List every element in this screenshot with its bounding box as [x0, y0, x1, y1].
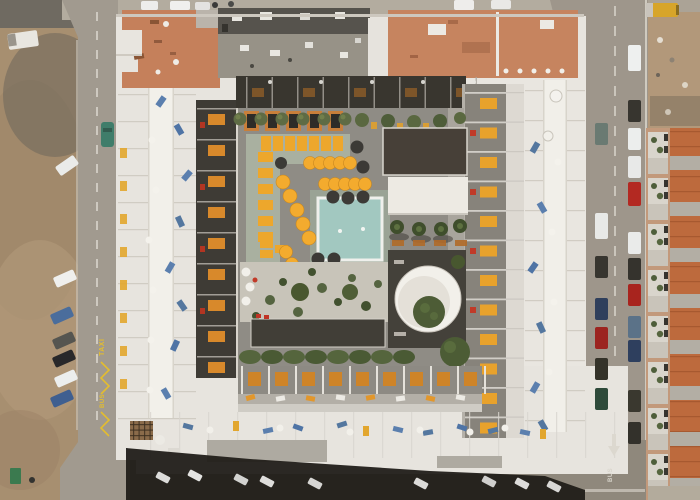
- wall-line: [506, 328, 524, 329]
- terrace-table: [148, 337, 155, 344]
- cabana-divider: [241, 366, 243, 394]
- debris: [682, 82, 688, 88]
- yellow-sunbed: [480, 98, 497, 109]
- red-chair: [200, 246, 205, 252]
- yellow-sunbed: [480, 334, 497, 345]
- balcony-lamp: [472, 80, 476, 84]
- gravel-garden: [240, 262, 392, 322]
- house-window: [664, 238, 668, 245]
- balcony-divider: [348, 77, 350, 110]
- red-chair: [470, 307, 476, 313]
- red-chair: [264, 315, 269, 319]
- aerial-photo: TAXIBUSBUS: [0, 0, 700, 500]
- yellow-door: [233, 421, 239, 431]
- top-sidewalk-line: [116, 14, 584, 17]
- car: [170, 1, 190, 10]
- dark-umbrella: [357, 191, 370, 204]
- ac-unit: [355, 38, 361, 43]
- balcony-divider: [399, 77, 401, 110]
- lane-dash: [614, 126, 616, 136]
- car: [628, 182, 641, 206]
- shrub: [308, 268, 316, 276]
- red-chair: [200, 184, 205, 190]
- cabana-divider: [349, 366, 351, 394]
- dark-umbrella: [357, 161, 370, 174]
- debris: [665, 109, 671, 115]
- roof-ridge-line: [670, 176, 700, 177]
- cabana-divider: [457, 366, 459, 394]
- facade-yellow-accent: [120, 313, 127, 323]
- facade-yellow-accent: [120, 214, 127, 224]
- car: [595, 298, 608, 320]
- yellow-umbrella: [283, 189, 297, 203]
- lane-dash: [96, 88, 98, 97]
- terrace-divider: [585, 412, 586, 458]
- yellow-sunbed: [273, 136, 283, 151]
- lane-dash: [96, 297, 98, 306]
- car: [628, 258, 641, 280]
- lane-dash: [614, 106, 616, 116]
- car: [595, 256, 608, 278]
- roof-ridge-line: [670, 356, 700, 357]
- terrace-table: [153, 187, 160, 194]
- lane-dash: [614, 6, 616, 16]
- yellow-sunbed: [258, 152, 273, 162]
- balcony-plant: [651, 321, 657, 327]
- orange-sunbed: [208, 238, 225, 249]
- hedge: [239, 350, 261, 364]
- sidewalk-corner: [648, 486, 700, 500]
- car: [628, 422, 641, 444]
- terrace-table: [146, 237, 153, 244]
- terrace-divider: [411, 412, 412, 458]
- debris: [29, 477, 35, 483]
- facade-yellow-accent: [120, 280, 127, 290]
- tree: [291, 283, 309, 301]
- lane-dash: [614, 266, 616, 276]
- wall-line: [506, 181, 524, 182]
- car-green: [101, 122, 114, 147]
- big-tree: [440, 337, 470, 367]
- balcony-plant: [657, 423, 663, 429]
- yellow-sunbed: [480, 128, 497, 139]
- car-van: [628, 45, 641, 71]
- tree-highlight: [320, 115, 325, 120]
- bench: [394, 260, 404, 264]
- yellow-sunbed: [261, 136, 271, 151]
- tree: [234, 113, 247, 126]
- orange-sunbed: [383, 372, 396, 386]
- orange-sunbed: [208, 145, 225, 156]
- roof-umbrella-white: [560, 69, 565, 74]
- roof-mark: [448, 20, 458, 24]
- car: [595, 123, 608, 145]
- yellow-sunbed: [297, 136, 307, 151]
- car-van: [595, 213, 608, 239]
- roof-table: [156, 70, 161, 75]
- roof-structure: [428, 24, 446, 35]
- hedge: [371, 350, 393, 364]
- lane-dash: [614, 186, 616, 196]
- tree: [276, 113, 289, 126]
- left-road-curb: [76, 40, 78, 430]
- balcony-plant: [651, 183, 657, 189]
- terrace-table: [417, 427, 424, 434]
- roof-vent: [250, 64, 254, 68]
- lane-dash: [96, 183, 98, 192]
- balcony-edge: [236, 100, 238, 378]
- pergola-inner: [331, 114, 340, 128]
- balcony-plant: [657, 469, 663, 475]
- roof-umbrella-white: [532, 69, 537, 74]
- house-window: [664, 468, 668, 475]
- balcony-bed-dim: [354, 88, 366, 97]
- car: [628, 100, 641, 122]
- yellow-sunbed: [260, 240, 273, 248]
- lane-dash: [96, 373, 98, 382]
- terrace-line: [118, 418, 196, 419]
- shrub: [334, 298, 342, 306]
- tree-highlight: [257, 115, 262, 120]
- balcony-lamp: [370, 80, 374, 84]
- dark-umbrella: [327, 191, 340, 204]
- palm-highlight: [394, 224, 400, 230]
- rowhouse-gable: [670, 202, 700, 216]
- car: [628, 316, 641, 338]
- wall-line: [506, 92, 524, 93]
- lookout-tree-highlight: [420, 303, 430, 313]
- orange-sunbed: [208, 331, 225, 342]
- car: [628, 232, 641, 254]
- terrace-table: [555, 159, 562, 166]
- wall-line: [506, 210, 524, 211]
- car-windshield: [103, 128, 112, 132]
- roof-shade: [462, 42, 490, 53]
- shrub: [293, 307, 303, 317]
- car: [141, 1, 158, 10]
- balcony-wall: [506, 84, 524, 438]
- balcony-divider: [197, 139, 238, 141]
- roof-structure: [540, 20, 554, 29]
- balcony-plant: [657, 193, 663, 199]
- roof-ridge-line: [670, 221, 700, 222]
- wall-line: [506, 299, 524, 300]
- roof-ridge-line: [670, 461, 700, 462]
- roof-ridge-line: [670, 191, 700, 192]
- yellow-pergola-dot: [371, 122, 377, 129]
- yellow-sunbed: [258, 184, 273, 194]
- bench: [394, 332, 406, 336]
- cabana-divider: [322, 366, 324, 394]
- lane-dash: [96, 354, 98, 363]
- lane-dash: [96, 278, 98, 287]
- pergola-grid-line: [130, 424, 153, 425]
- terrace-table: [546, 369, 553, 376]
- yellow-umbrella: [276, 175, 290, 189]
- rowhouse-front: [648, 342, 668, 358]
- lane-dash: [614, 146, 616, 156]
- balcony-divider: [197, 232, 238, 234]
- yellow-umbrella: [280, 246, 293, 259]
- roof-ridge-line: [670, 281, 700, 282]
- balcony-plant: [651, 459, 657, 465]
- tree: [407, 115, 421, 129]
- white-umbrella: [242, 268, 251, 277]
- balcony-bed-dim: [303, 88, 315, 97]
- orange-sunbed: [208, 362, 225, 373]
- rowhouse-gable: [670, 432, 700, 446]
- terrace-table: [502, 425, 509, 432]
- shrub: [348, 274, 356, 282]
- orange-sunbed: [208, 207, 225, 218]
- lane-dash: [96, 259, 98, 268]
- terrace-divider: [440, 412, 441, 458]
- hedge: [349, 350, 371, 364]
- lane-dash: [96, 335, 98, 344]
- lane-dash: [96, 202, 98, 211]
- pergola-grid-line: [130, 430, 153, 431]
- orange-sunbed: [464, 372, 477, 386]
- crosswalk-line: [585, 489, 645, 492]
- terrace-divider: [382, 412, 383, 458]
- terrace-table: [207, 427, 214, 434]
- orange-sunbed: [208, 114, 225, 125]
- balcony-lamp: [421, 80, 425, 84]
- house-window: [664, 318, 668, 325]
- orange-sunbed: [410, 372, 423, 386]
- lane-dash: [614, 226, 616, 236]
- orange-sunbed: [302, 372, 315, 386]
- roof-ridge-line: [670, 146, 700, 147]
- wall-line: [506, 122, 524, 123]
- yellow-umbrella: [290, 203, 304, 217]
- house-window: [664, 134, 668, 141]
- roof-white-edge: [578, 16, 586, 80]
- hedge: [327, 350, 349, 364]
- tree: [433, 114, 447, 128]
- dark-umbrella: [342, 192, 355, 205]
- spine-edge: [173, 88, 175, 418]
- balcony-divider: [197, 201, 238, 203]
- truck-detail: [676, 5, 679, 15]
- pergola-inner: [268, 114, 277, 128]
- yellow-sunbed: [258, 216, 273, 226]
- red-chair: [256, 314, 261, 318]
- house-window: [664, 410, 668, 417]
- shrub: [317, 283, 327, 293]
- yellow-door: [540, 429, 546, 439]
- balcony-divider: [197, 356, 238, 358]
- balcony-plant: [657, 285, 663, 291]
- lane-dash: [96, 221, 98, 230]
- ac-unit: [270, 50, 280, 56]
- facade-yellow-accent: [120, 247, 127, 257]
- car: [628, 340, 641, 362]
- dark-umbrella: [275, 157, 287, 169]
- lane-dash: [614, 246, 616, 256]
- lookout-tree: [413, 296, 445, 328]
- shrub: [279, 278, 287, 286]
- pergola-grid-line: [130, 435, 153, 436]
- spine-edge: [566, 80, 568, 432]
- shrub: [374, 280, 382, 288]
- green-dumpster: [10, 468, 21, 484]
- orange-planter: [413, 240, 425, 246]
- bus-road-marking-left: BUS: [100, 394, 106, 408]
- cabana-divider: [268, 366, 270, 394]
- charcoal-roof: [251, 319, 385, 347]
- pergola-inner: [247, 114, 256, 128]
- cabana-divider: [295, 366, 297, 394]
- facade-yellow-accent: [120, 148, 127, 158]
- hedge: [393, 350, 415, 364]
- lane-dash: [96, 411, 98, 420]
- lane-dash: [614, 46, 616, 56]
- wall-line: [506, 417, 524, 418]
- white-umbrella: [242, 297, 251, 306]
- yellow-sunbed: [333, 136, 343, 151]
- roof-table: [173, 59, 179, 65]
- lane-dash: [96, 69, 98, 78]
- palm-highlight: [457, 223, 463, 229]
- yellow-door: [363, 426, 369, 436]
- rowhouse-front: [648, 158, 668, 174]
- terrace-table: [549, 229, 556, 236]
- lane-dash: [96, 145, 98, 154]
- big-tree-highlight: [444, 341, 456, 353]
- balcony-lamp: [268, 80, 272, 84]
- orange-sunbed: [356, 372, 369, 386]
- balcony-divider: [197, 263, 238, 265]
- house-window: [664, 272, 668, 279]
- terrace-divider: [353, 412, 354, 458]
- wall-line: [506, 269, 524, 270]
- pergola-inner: [289, 114, 298, 128]
- aerial-photo-svg: TAXIBUSBUS: [0, 0, 700, 500]
- ac-unit: [340, 52, 348, 58]
- house-window: [664, 422, 668, 429]
- orange-sunbed: [248, 372, 261, 386]
- balcony-plant: [651, 413, 657, 419]
- house-window: [664, 456, 668, 463]
- rowhouse-gable: [670, 248, 700, 262]
- debris: [656, 73, 660, 77]
- yellow-umbrella: [344, 157, 357, 170]
- roof-vent: [288, 58, 292, 62]
- balcony-divider: [197, 108, 238, 110]
- house-window: [664, 180, 668, 187]
- tree: [297, 113, 310, 126]
- roof-hatch: [222, 24, 228, 32]
- tree-highlight: [299, 115, 304, 120]
- balcony-divider: [197, 294, 238, 296]
- balcony-divider: [450, 77, 452, 110]
- roof-umbrella-white: [546, 69, 551, 74]
- yellow-sunbed: [480, 364, 497, 375]
- roof-mark: [410, 55, 418, 58]
- rowhouse-gable: [670, 156, 700, 170]
- rowhouse-front: [648, 388, 668, 404]
- lane-dash: [96, 316, 98, 325]
- lane-dash: [96, 164, 98, 173]
- terrace-table: [277, 425, 284, 432]
- terrace-table: [347, 429, 354, 436]
- red-chair: [200, 122, 205, 128]
- roof-ridge-line: [670, 326, 700, 327]
- roof-mark: [154, 40, 162, 43]
- balcony-plant: [657, 239, 663, 245]
- facade-yellow-accent: [120, 379, 127, 389]
- balcony-lamp: [319, 80, 323, 84]
- roof-ridge-line: [670, 476, 700, 477]
- house-window: [664, 284, 668, 291]
- balcony-divider: [297, 77, 299, 110]
- yellow-sunbed: [260, 250, 273, 258]
- orange-planter: [455, 240, 467, 246]
- roof-umbrella-white: [518, 69, 523, 74]
- terrace-table: [467, 429, 474, 436]
- orange-sunbed: [208, 300, 225, 311]
- yellow-umbrella: [296, 217, 310, 231]
- terrace-table: [149, 137, 156, 144]
- yellow-sunbed: [480, 216, 497, 227]
- orange-sunbed: [437, 372, 450, 386]
- yellow-sunbed: [480, 187, 497, 198]
- tree-highlight: [341, 115, 346, 120]
- hedge: [305, 350, 327, 364]
- hedge: [261, 350, 283, 364]
- lane-dash: [96, 107, 98, 116]
- gray-roof: [437, 456, 502, 468]
- rowhouse-front: [648, 434, 668, 450]
- lane-dash: [96, 392, 98, 401]
- lane-dash: [614, 286, 616, 296]
- rowhouse-front: [648, 204, 668, 220]
- truck-camper-cab: [7, 34, 17, 47]
- lane-dash: [614, 66, 616, 76]
- lane-dash: [614, 26, 616, 36]
- tree: [381, 114, 395, 128]
- terrace-table: [551, 299, 558, 306]
- car: [628, 128, 641, 150]
- roof-ridge-line: [670, 266, 700, 267]
- yellow-sunbed: [480, 157, 497, 168]
- terrace-table: [147, 387, 154, 394]
- tree: [454, 112, 466, 124]
- balcony-plant: [657, 377, 663, 383]
- pergola-inner: [310, 114, 319, 128]
- debris: [657, 37, 663, 43]
- house-window: [664, 226, 668, 233]
- corner-annex: [116, 30, 142, 56]
- cabana-divider: [376, 366, 378, 394]
- truck-cab: [646, 3, 653, 17]
- lane-dash: [614, 346, 616, 356]
- lane-dash: [614, 166, 616, 176]
- yellow-sunbed: [258, 200, 273, 210]
- rowhouse-front: [648, 296, 668, 312]
- red-chair: [470, 130, 476, 136]
- facade-yellow-accent: [120, 181, 127, 191]
- lane-dash: [614, 86, 616, 96]
- water-tank: [543, 131, 553, 141]
- yellow-umbrella: [302, 231, 316, 245]
- lane-dash: [96, 126, 98, 135]
- red-chair: [253, 278, 258, 283]
- balcony-plant: [651, 229, 657, 235]
- cabana-divider: [403, 366, 405, 394]
- orange-sunbed: [329, 372, 342, 386]
